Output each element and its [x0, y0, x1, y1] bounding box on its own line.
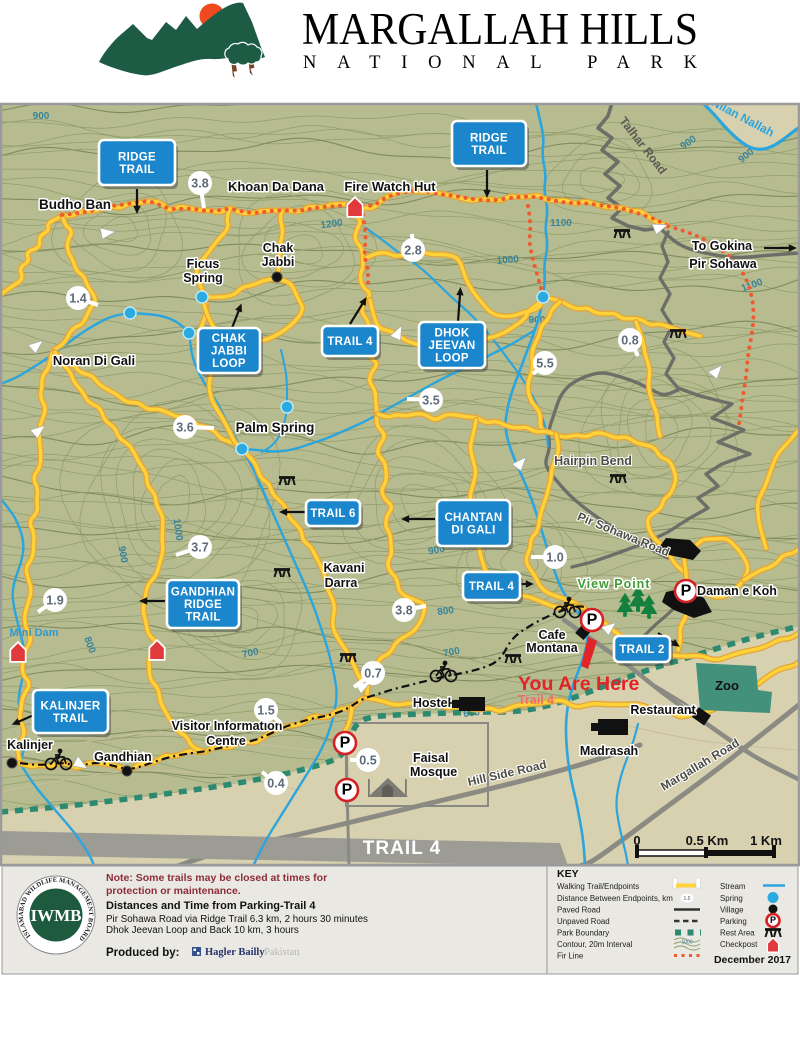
- svg-text:900: 900: [33, 111, 50, 122]
- svg-text:TRAIL: TRAIL: [471, 145, 506, 157]
- svg-text:You Are Here: You Are Here: [518, 673, 640, 695]
- svg-text:P: P: [681, 583, 692, 600]
- svg-text:TRAIL 4: TRAIL 4: [469, 581, 515, 593]
- svg-text:protection or maintenance.: protection or maintenance.: [106, 885, 241, 897]
- svg-text:Restaurant: Restaurant: [630, 703, 696, 717]
- svg-text:Spring: Spring: [720, 894, 743, 903]
- svg-text:Zoo: Zoo: [715, 678, 739, 693]
- svg-text:Paved Road: Paved Road: [557, 906, 600, 915]
- svg-text:TRAIL 4: TRAIL 4: [327, 336, 373, 348]
- svg-text:Distances and Time from Parkin: Distances and Time from Parking-Trail 4: [106, 900, 316, 912]
- svg-text:Jabbi: Jabbi: [262, 255, 295, 269]
- svg-text:Kavani: Kavani: [324, 561, 365, 575]
- svg-text:CHAK: CHAK: [212, 333, 247, 345]
- svg-text:0: 0: [633, 833, 640, 848]
- svg-text:3.8: 3.8: [395, 604, 412, 618]
- svg-text:3.6: 3.6: [176, 421, 193, 435]
- svg-text:IWMB: IWMB: [31, 906, 82, 925]
- svg-text:TRAIL 2: TRAIL 2: [619, 644, 664, 656]
- svg-text:Faisal: Faisal: [413, 751, 448, 765]
- svg-text:0.5 Km: 0.5 Km: [686, 833, 729, 848]
- svg-text:3.8: 3.8: [191, 177, 208, 191]
- svg-text:Fir Line: Fir Line: [557, 952, 584, 961]
- svg-text:TRAIL: TRAIL: [53, 713, 88, 725]
- svg-text:0.7: 0.7: [364, 667, 381, 681]
- svg-text:JABBI: JABBI: [211, 346, 247, 358]
- svg-text:Budho Ban: Budho Ban: [39, 197, 111, 212]
- svg-text:CHANTAN: CHANTAN: [444, 512, 502, 524]
- svg-text:View Point: View Point: [578, 577, 651, 591]
- svg-text:Fire Watch Hut: Fire Watch Hut: [344, 179, 436, 194]
- svg-text:RIDGE: RIDGE: [184, 599, 222, 611]
- svg-text:Mosque: Mosque: [410, 765, 457, 779]
- svg-text:Checkpost: Checkpost: [720, 940, 758, 949]
- svg-text:Khoan Da Dana: Khoan Da Dana: [228, 179, 325, 194]
- svg-text:TRAIL: TRAIL: [119, 164, 154, 176]
- svg-text:Distance Between Endpoints, km: Distance Between Endpoints, km: [557, 894, 673, 903]
- svg-text:Centre: Centre: [206, 734, 246, 748]
- svg-text:Palm Spring: Palm Spring: [236, 420, 315, 435]
- svg-text:LOOP: LOOP: [212, 358, 246, 370]
- svg-text:Mini Dam: Mini Dam: [10, 627, 59, 639]
- svg-text:December 2017: December 2017: [714, 954, 791, 966]
- svg-text:RIDGE: RIDGE: [118, 151, 156, 163]
- svg-text:Parking: Parking: [720, 917, 747, 926]
- svg-text:1 Km: 1 Km: [750, 833, 782, 848]
- svg-text:Contour, 20m Interval: Contour, 20m Interval: [557, 940, 633, 949]
- svg-text:1.5: 1.5: [684, 896, 691, 902]
- svg-text:Stream: Stream: [720, 882, 746, 891]
- svg-text:Park Boundary: Park Boundary: [557, 929, 609, 938]
- svg-text:Hairpin Bend: Hairpin Bend: [554, 454, 632, 468]
- svg-text:Gandhian: Gandhian: [94, 750, 152, 764]
- svg-text:To Gokina: To Gokina: [692, 239, 753, 253]
- svg-text:Pir Sohawa: Pir Sohawa: [689, 257, 757, 271]
- svg-text:Kalinjer: Kalinjer: [7, 738, 53, 752]
- svg-text:Darra: Darra: [325, 576, 359, 590]
- svg-text:KEY: KEY: [557, 868, 579, 880]
- svg-text:JEEVAN: JEEVAN: [429, 340, 476, 352]
- svg-text:1.9: 1.9: [46, 594, 63, 608]
- svg-text:RIDGE: RIDGE: [470, 132, 508, 144]
- svg-text:1000: 1000: [496, 254, 520, 267]
- svg-text:1100: 1100: [550, 218, 572, 229]
- svg-text:P: P: [342, 782, 353, 799]
- svg-text:TRAIL: TRAIL: [185, 612, 220, 624]
- svg-text:Trail 4: Trail 4: [518, 693, 554, 707]
- svg-text:Cafe: Cafe: [538, 628, 565, 642]
- svg-text:Pir Sohawa Road via Ridge Trai: Pir Sohawa Road via Ridge Trail 6.3 km, …: [106, 914, 368, 925]
- svg-text:Ficus: Ficus: [187, 257, 220, 271]
- svg-text:MARGALLAH HILLS: MARGALLAH HILLS: [302, 4, 698, 54]
- svg-text:3.7: 3.7: [191, 541, 208, 555]
- svg-text:Village: Village: [720, 906, 744, 915]
- svg-text:0.8: 0.8: [621, 334, 638, 348]
- svg-text:1000: 1000: [681, 940, 692, 946]
- svg-text:GANDHIAN: GANDHIAN: [171, 587, 235, 599]
- svg-text:Daman e Koh: Daman e Koh: [697, 584, 777, 598]
- svg-text:Unpaved Road: Unpaved Road: [557, 917, 610, 926]
- svg-text:0.4: 0.4: [267, 777, 284, 791]
- svg-text:P: P: [770, 915, 776, 925]
- svg-text:5.5: 5.5: [536, 357, 553, 371]
- svg-text:Hagler Bailly: Hagler Bailly: [205, 947, 265, 958]
- svg-text:Note: Some trails may be close: Note: Some trails may be closed at times…: [106, 872, 327, 884]
- svg-text:Spring: Spring: [183, 271, 223, 285]
- svg-text:Produced by:: Produced by:: [106, 947, 179, 959]
- svg-text:2.8: 2.8: [404, 244, 421, 258]
- svg-text:Dhok Jeevan Loop and Back 10 k: Dhok Jeevan Loop and Back 10 km, 3 hours: [106, 925, 299, 936]
- svg-text:TRAIL 4: TRAIL 4: [363, 838, 441, 859]
- svg-text:Montana: Montana: [526, 641, 578, 655]
- svg-text:Noran Di Gali: Noran Di Gali: [53, 353, 135, 368]
- svg-text:LOOP: LOOP: [435, 353, 469, 365]
- svg-text:P: P: [587, 612, 598, 629]
- svg-text:3.5: 3.5: [422, 394, 439, 408]
- svg-text:TRAIL 6: TRAIL 6: [310, 508, 355, 520]
- svg-text:Rest Area: Rest Area: [720, 929, 755, 938]
- svg-text:0.5: 0.5: [359, 754, 376, 768]
- svg-text:1.0: 1.0: [546, 551, 563, 565]
- svg-text:1.5: 1.5: [257, 704, 274, 718]
- svg-text:Hostel: Hostel: [413, 696, 451, 710]
- svg-text:P: P: [340, 735, 351, 752]
- svg-text:Madrasah: Madrasah: [580, 744, 638, 758]
- svg-text:Walking Trail/Endpoints: Walking Trail/Endpoints: [557, 882, 639, 891]
- svg-text:1.4: 1.4: [69, 292, 86, 306]
- svg-text:Chak: Chak: [263, 241, 294, 255]
- svg-text:Pakistan: Pakistan: [264, 947, 300, 958]
- svg-text:DHOK: DHOK: [434, 328, 469, 340]
- svg-text:DI GALI: DI GALI: [451, 524, 495, 536]
- svg-text:KALINJER: KALINJER: [41, 700, 101, 712]
